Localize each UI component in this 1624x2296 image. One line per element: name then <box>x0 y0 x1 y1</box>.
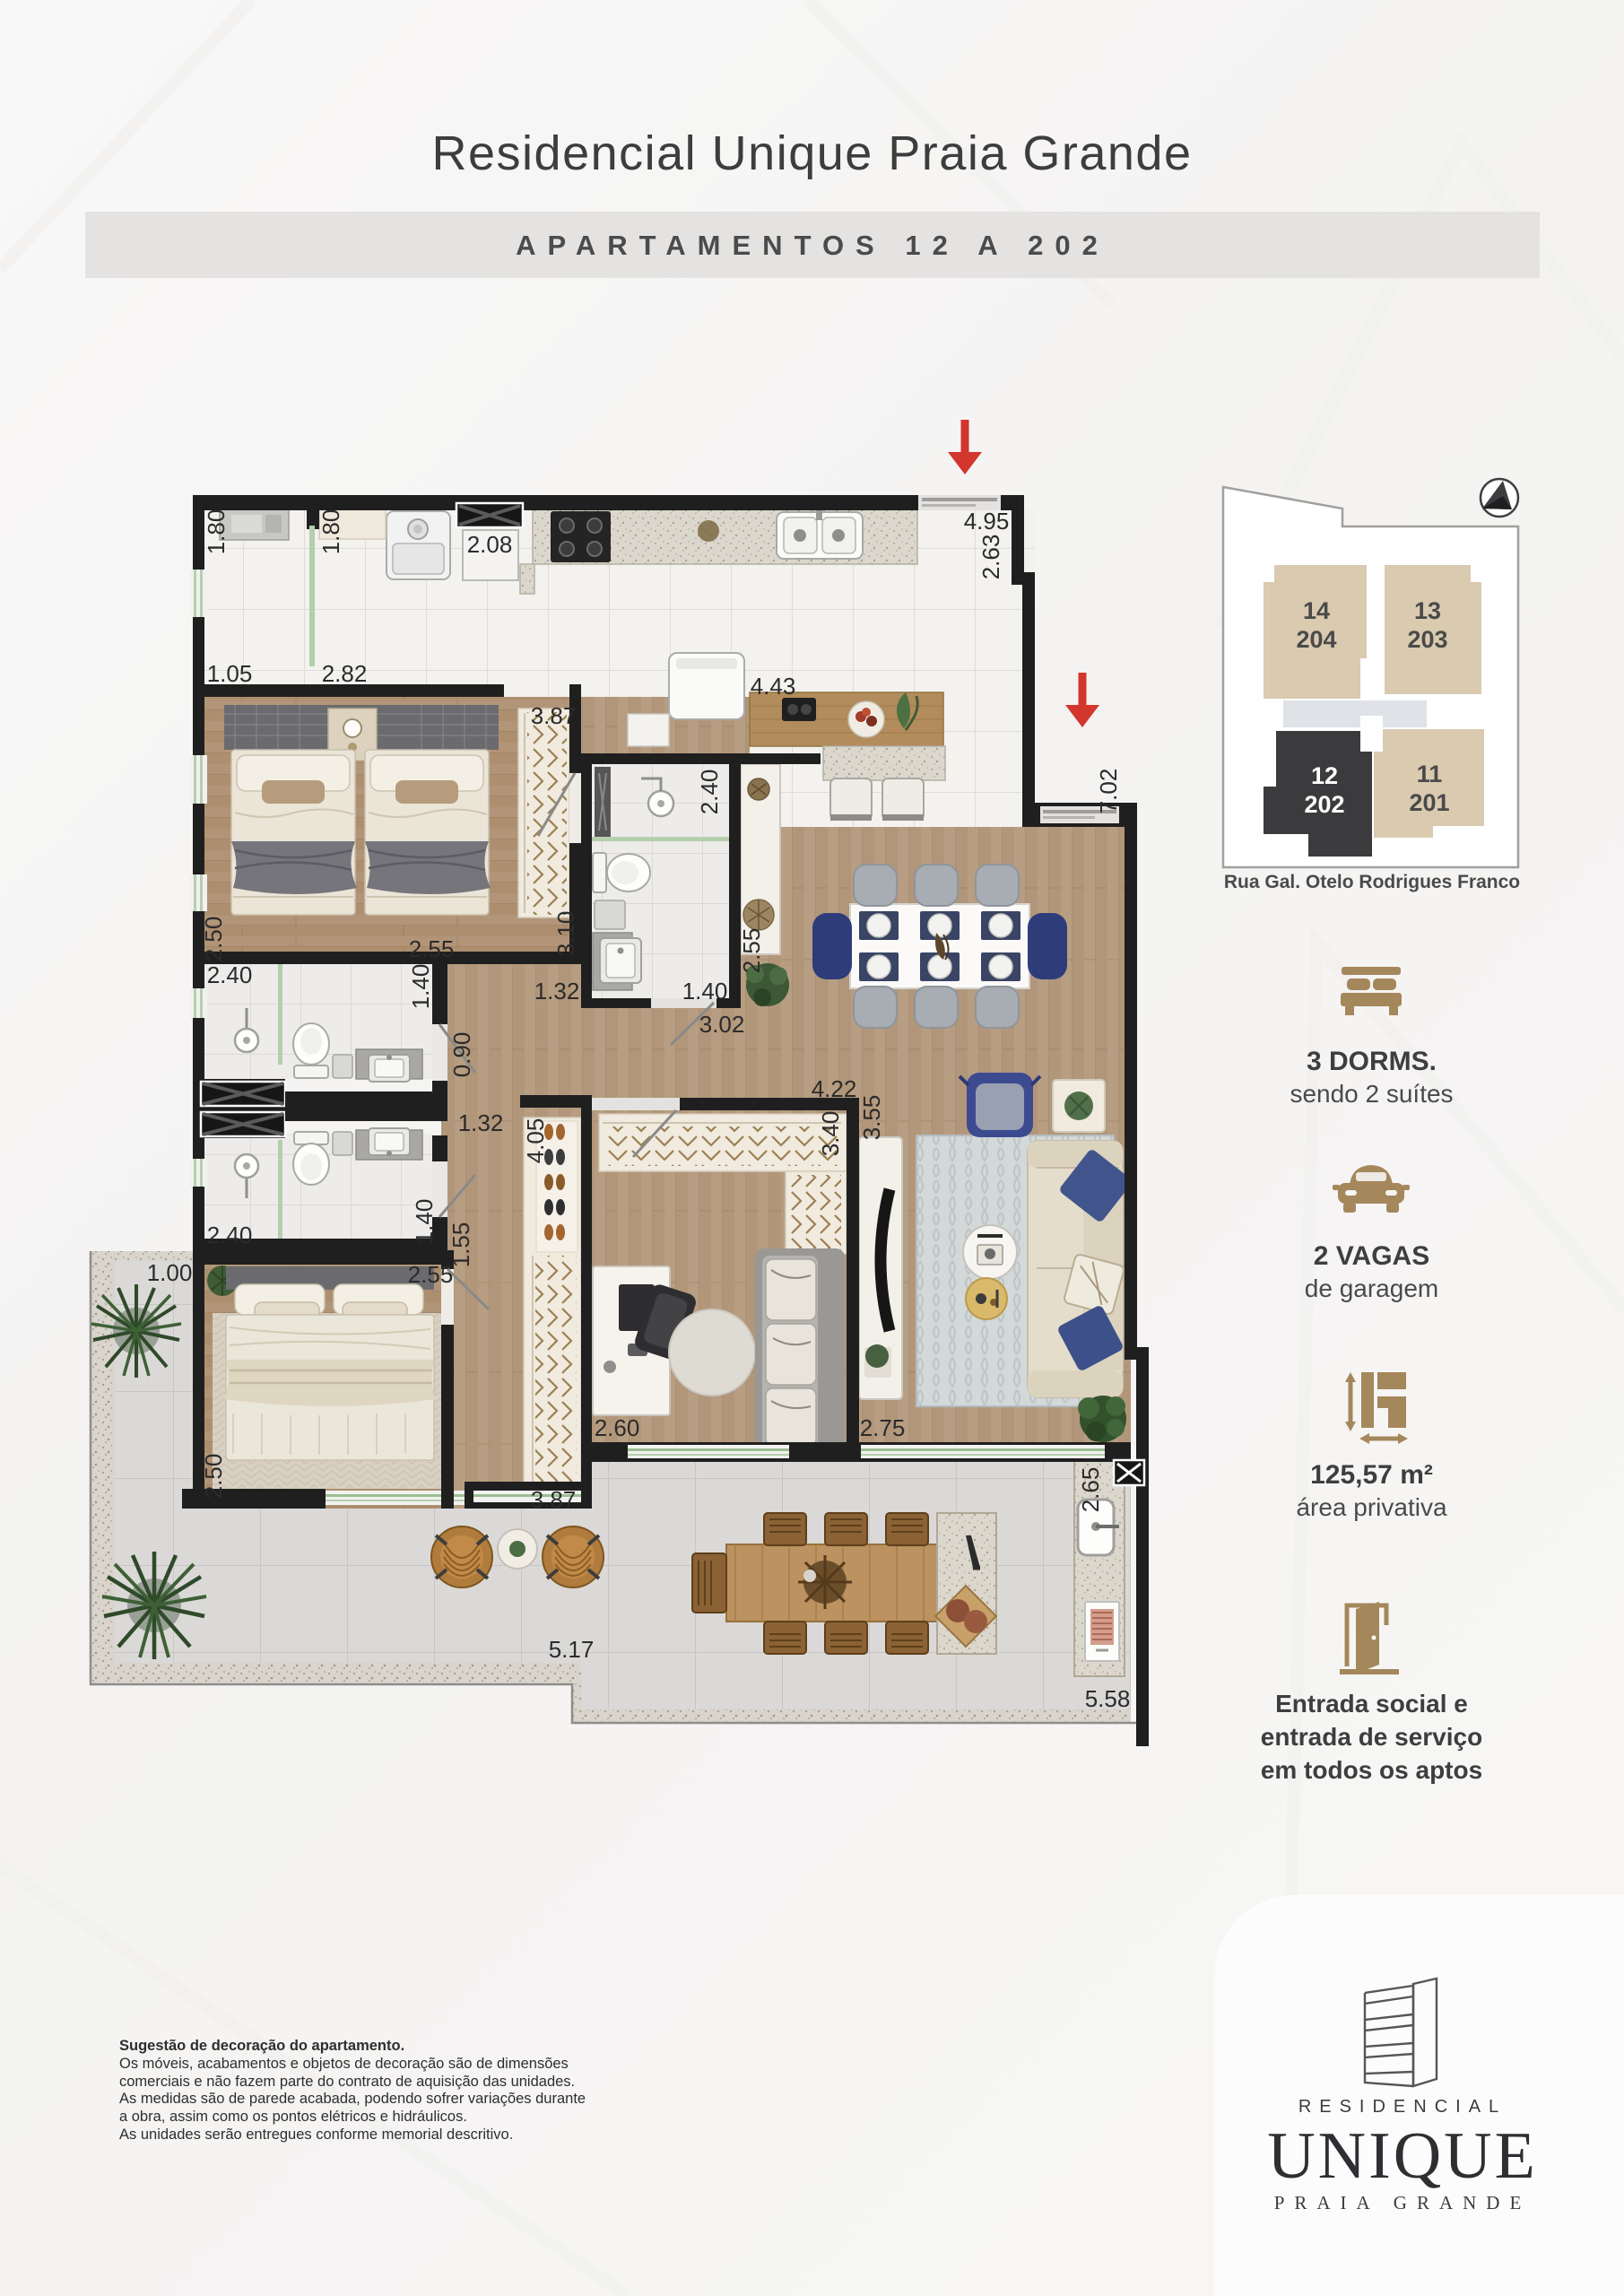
svg-text:13: 13 <box>1414 597 1441 624</box>
svg-text:202: 202 <box>1304 791 1344 818</box>
svg-text:14: 14 <box>1303 597 1330 624</box>
svg-text:12: 12 <box>1311 762 1338 789</box>
svg-text:203: 203 <box>1407 626 1447 653</box>
svg-text:204: 204 <box>1296 626 1336 653</box>
svg-text:201: 201 <box>1409 789 1449 816</box>
svg-text:11: 11 <box>1417 761 1443 787</box>
